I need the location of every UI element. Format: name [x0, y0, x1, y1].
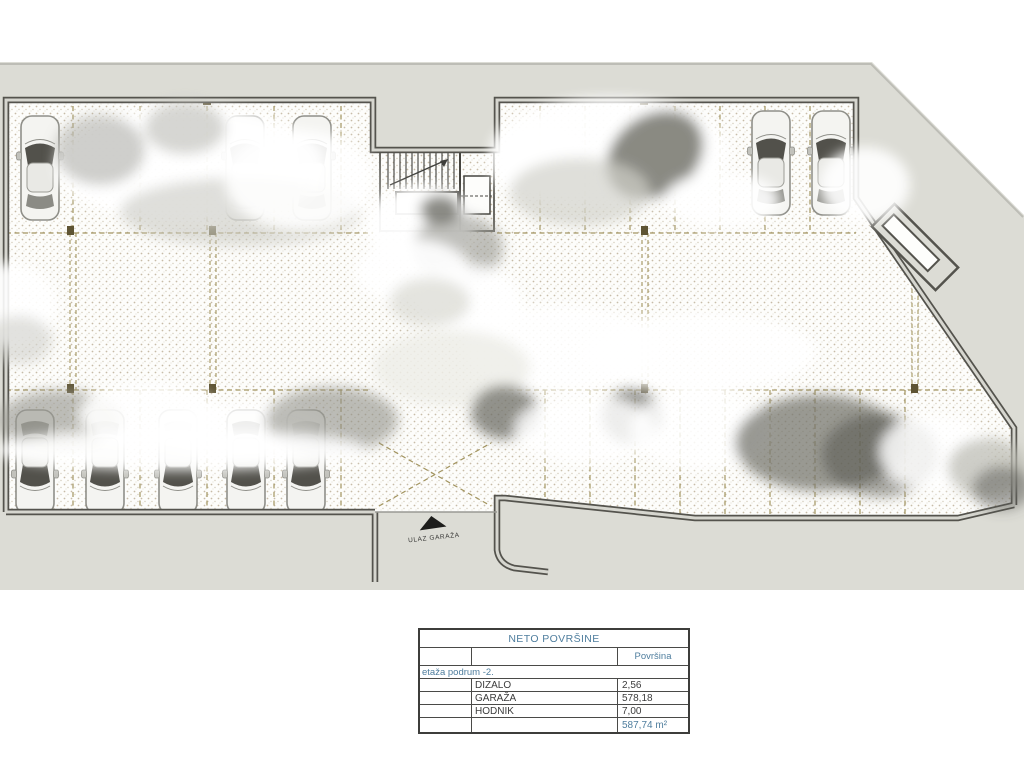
area-table-title-row: NETO POVRŠINE: [420, 630, 688, 648]
header-cell-empty-2: [472, 648, 618, 665]
room-name: GARAŽA: [472, 692, 618, 704]
total-row: 587,74 m²: [420, 718, 688, 732]
floor-plan-canvas: ULAZ GARAŽA: [0, 0, 1024, 600]
table-row: DIZALO 2,56: [420, 679, 688, 692]
room-name: HODNIK: [472, 705, 618, 717]
area-table: NETO POVRŠINE Površina etaža podrum -2. …: [418, 628, 690, 734]
room-area: 578,18: [618, 692, 688, 704]
table-row: GARAŽA 578,18: [420, 692, 688, 705]
room-area: 7,00: [618, 705, 688, 717]
area-table-header-row: Površina: [420, 648, 688, 666]
floor-plan-page: ULAZ GARAŽA NETO POVRŠINE Površina etaža…: [0, 0, 1024, 768]
floor-row: etaža podrum -2.: [420, 666, 688, 679]
room-name: DIZALO: [472, 679, 618, 691]
floor-label: etaža podrum -2.: [422, 667, 494, 678]
area-column-header: Površina: [618, 648, 688, 665]
table-row: HODNIK 7,00: [420, 705, 688, 718]
header-cell-empty-1: [420, 648, 472, 665]
room-area: 2,56: [618, 679, 688, 691]
table-title: NETO POVRŠINE: [508, 633, 599, 645]
total-area: 587,74 m²: [618, 718, 688, 732]
